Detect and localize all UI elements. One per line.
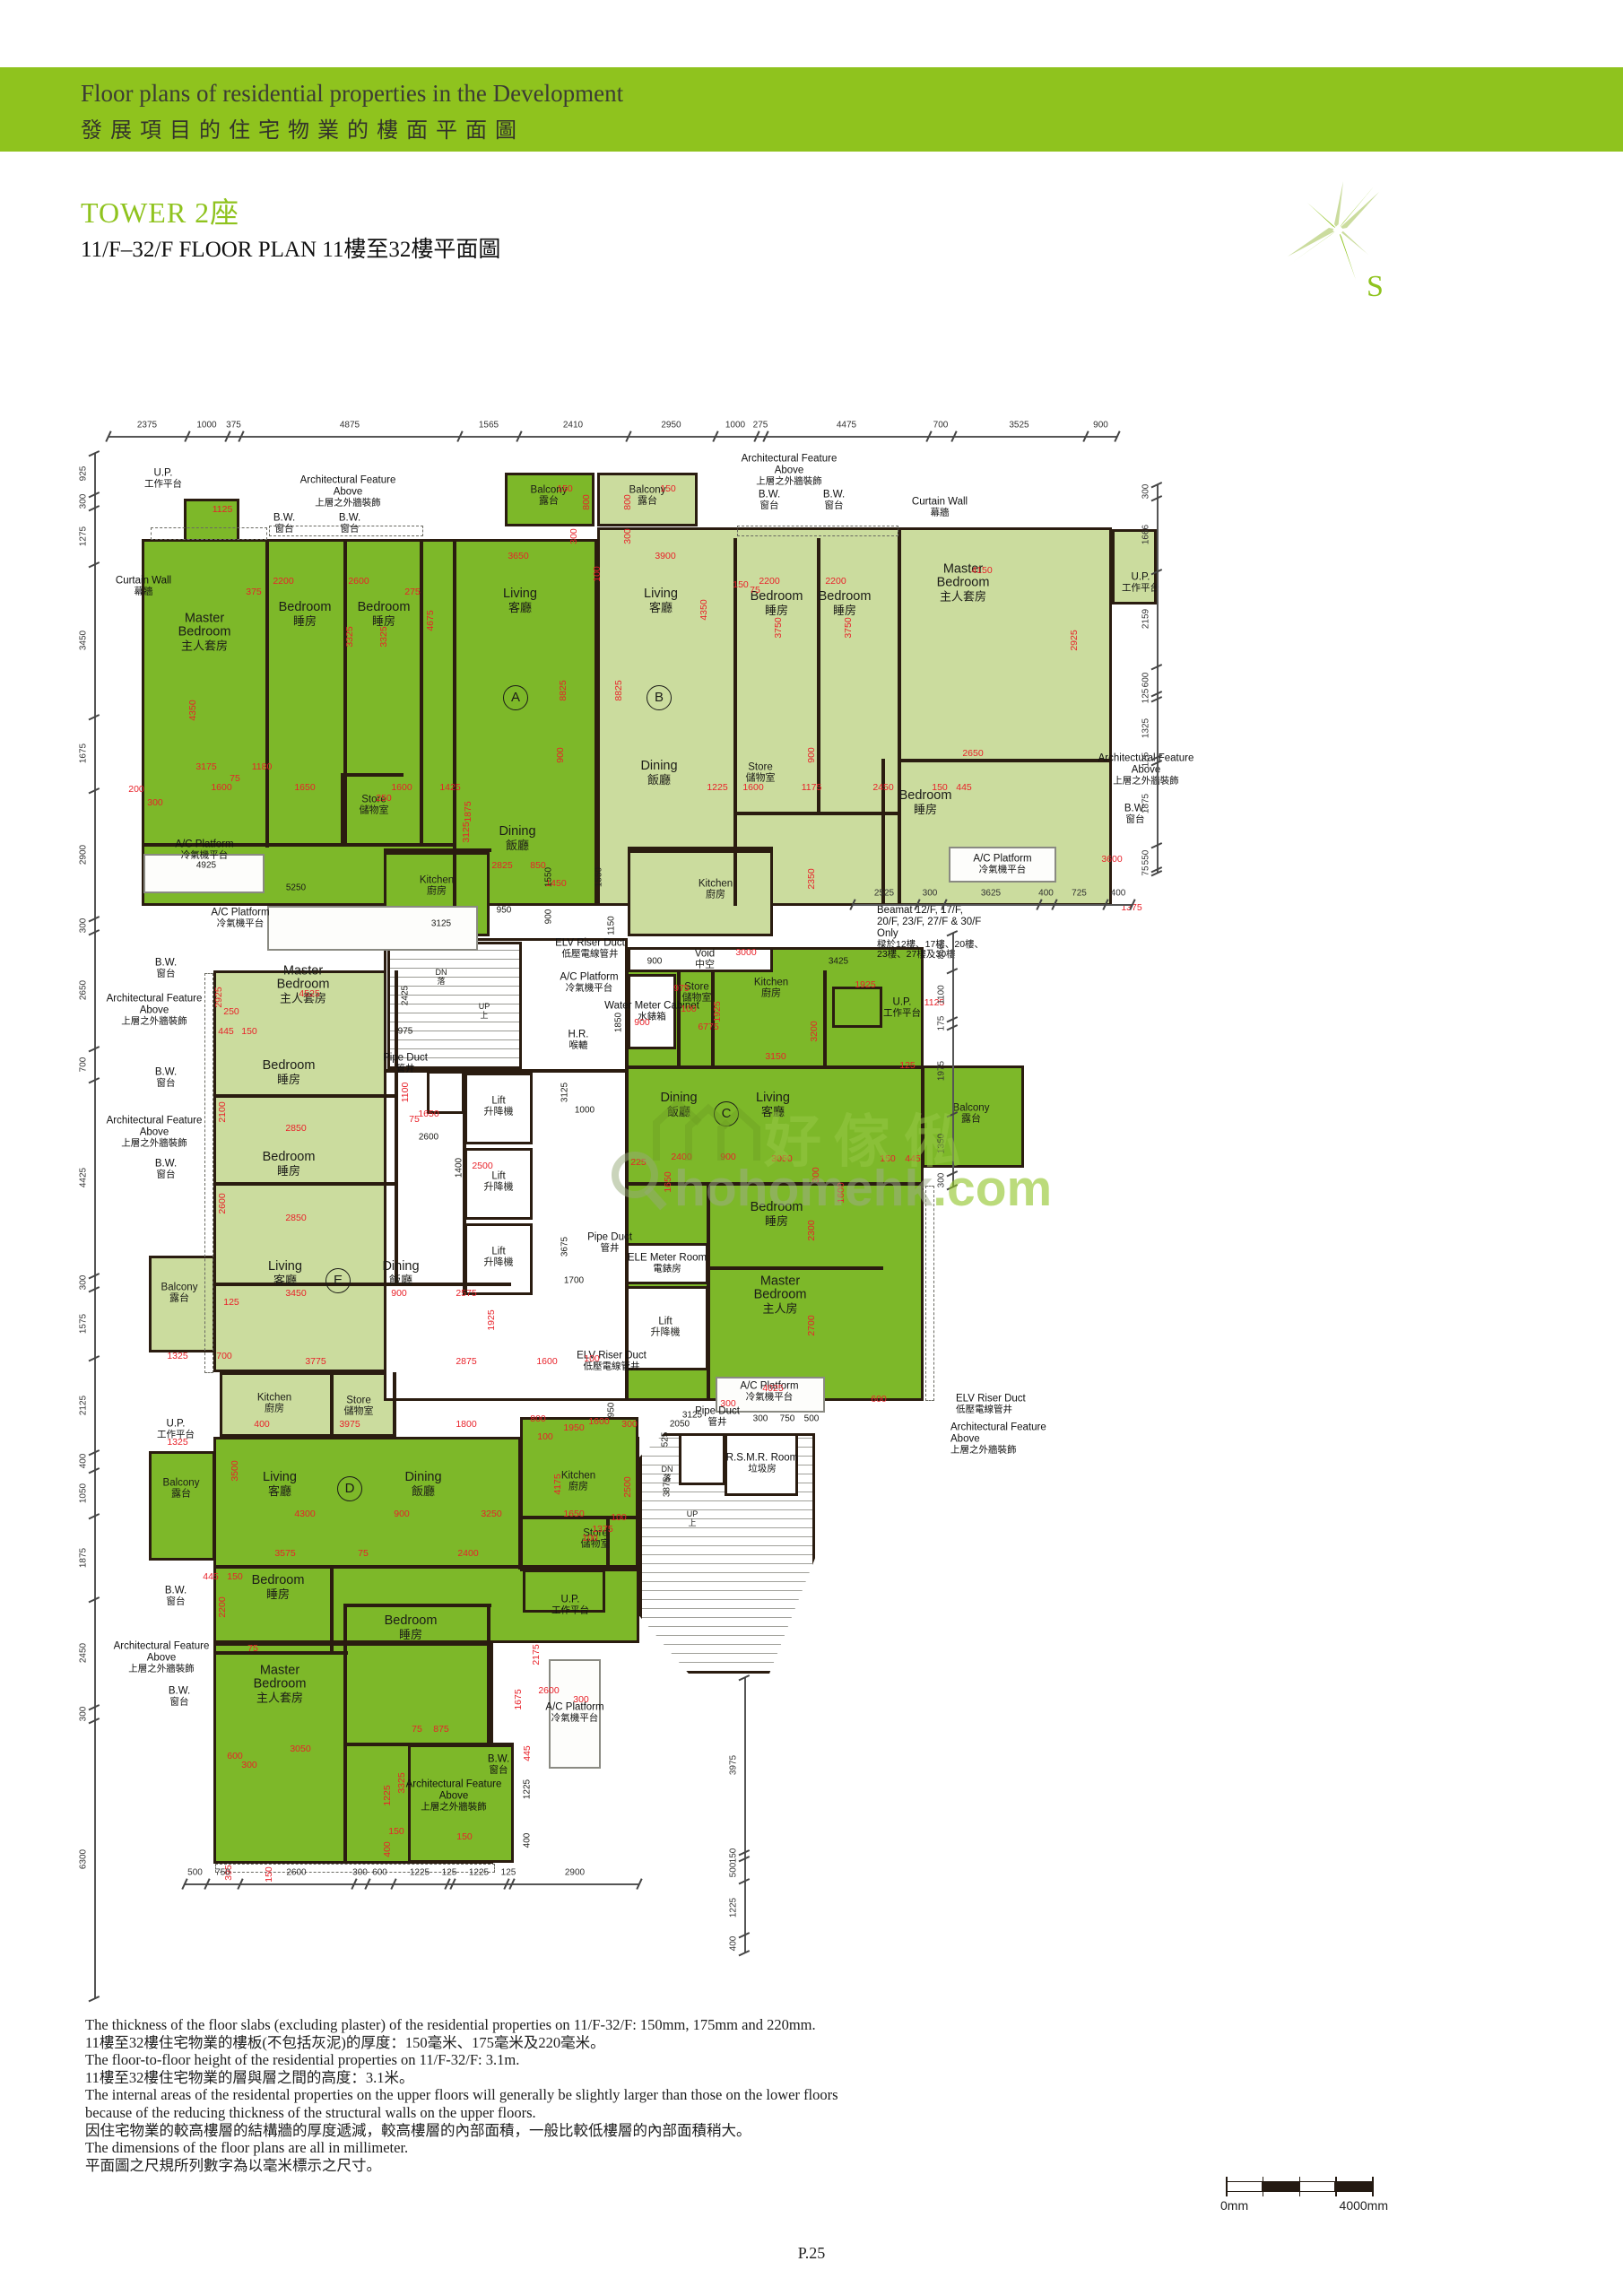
dimension: 2500: [472, 1161, 492, 1171]
wall: [343, 1604, 491, 1607]
annotation-zh: 電錶房: [613, 1265, 721, 1275]
dimension: 3425: [829, 957, 848, 967]
dimension: 1950: [563, 1422, 584, 1433]
dimension: 250: [223, 1006, 239, 1017]
room-label-en: Kitchen: [243, 1393, 306, 1404]
unit-badge: C: [714, 1101, 739, 1126]
dimension: 3050: [771, 1153, 792, 1164]
dimension: 2575: [456, 1288, 476, 1299]
room-label-en: Bedroom: [235, 1574, 321, 1587]
wall: [213, 1651, 348, 1655]
dimension: 3125: [682, 1411, 702, 1421]
wall: [518, 1437, 522, 1570]
dim-chain-value: 500: [187, 1868, 203, 1878]
dim-chain-value: 850: [937, 944, 947, 960]
annotation: U.P.工作平台: [1087, 572, 1194, 595]
note-line: 平面圖之尺規所列數字為以毫米標示之尺寸。: [85, 2157, 838, 2175]
dimension: 2400: [671, 1152, 691, 1162]
dimension: 4025: [762, 1383, 783, 1394]
room-label: Living客廳: [477, 587, 563, 614]
annotation-zh: 上層之外牆裝飾: [400, 1802, 508, 1813]
dimension: 200: [128, 784, 144, 795]
dimension: 600: [227, 1751, 243, 1761]
dimension: 75: [412, 1724, 422, 1735]
dim-chain-value: 2450: [79, 1643, 89, 1663]
room-label: Dining飯廳: [636, 1091, 722, 1118]
annotation: B.W.窗台: [126, 1686, 233, 1709]
annotation: Architectural Feature Above上層之外牆裝飾: [100, 1115, 208, 1149]
annotation-en: Pipe Duct: [556, 1232, 664, 1244]
annotation-zh: 窗台: [445, 1766, 552, 1777]
room-label-zh: 睡房: [246, 1165, 332, 1178]
room-label: Living客廳: [237, 1471, 323, 1498]
annotation: B.W.窗台: [122, 1586, 230, 1608]
dim-chain-value: 175: [937, 1015, 947, 1031]
room-label-zh: 睡房: [235, 1588, 321, 1601]
annotation-en: Architectural Feature Above: [950, 1422, 1058, 1445]
room-label-en: Dining: [358, 1260, 444, 1274]
dimension: 1700: [564, 1276, 584, 1286]
dimension: 300: [568, 528, 579, 544]
room-label: Bedroom睡房: [802, 590, 888, 617]
dimension: 3325: [344, 626, 355, 647]
wall: [823, 970, 827, 1067]
room-label-en: Master Bedroom: [161, 612, 247, 639]
annotation-zh: 窗台: [122, 1597, 230, 1608]
dim-chain-value: 400: [1111, 889, 1126, 899]
dimension: 1650: [563, 1509, 584, 1519]
room-label-zh: 落: [423, 978, 459, 987]
annotation-en: Pipe Duct: [352, 1053, 459, 1065]
room-label-en: Master Bedroom: [920, 562, 1006, 589]
room-label: Balcony露台: [150, 1478, 213, 1500]
dimension: 900: [806, 747, 817, 763]
dimension: 75: [750, 585, 760, 596]
room-label: Store儲物室: [343, 795, 405, 817]
dimension: 1225: [382, 1785, 393, 1805]
annotation-en: Architectural Feature Above: [100, 993, 208, 1016]
room-label: Dining飯廳: [380, 1471, 466, 1498]
dimension: 1325: [167, 1351, 187, 1361]
dimension: 2925: [1069, 630, 1080, 650]
scale-bar-segment: [1226, 2181, 1263, 2192]
wall: [899, 759, 1112, 762]
dimension: 75: [247, 1643, 258, 1654]
annotation-zh: 樑於12樓、17樓、20樓、23樓、27樓及30樓: [877, 940, 985, 961]
annotation-en: U.P.: [516, 1595, 624, 1606]
dim-chain-value: 2900: [565, 1868, 585, 1878]
dim-chain: [108, 436, 1116, 438]
wall: [395, 970, 398, 1284]
dimension: 2925: [213, 987, 224, 1007]
dim-chain-value: 2650: [79, 980, 89, 1000]
annotation-en: Architectural Feature Above: [100, 1115, 208, 1138]
dim-chain-value: 750: [215, 1868, 230, 1878]
dimension: 2500: [622, 1476, 633, 1497]
dimension: 125: [223, 1297, 239, 1308]
room-label-en: Kitchen: [405, 875, 468, 886]
dim-chain-value: 1000: [196, 421, 216, 430]
dimension: 3000: [735, 947, 756, 958]
annotation: B.W.窗台: [1081, 804, 1189, 826]
dimension: 3975: [339, 1419, 360, 1430]
dimension: 8825: [613, 680, 624, 700]
dim-chain: [852, 904, 1132, 906]
dimension: 4350: [187, 700, 198, 720]
room-label-zh: 主人套房: [237, 1692, 323, 1705]
room-label-zh: 客廳: [237, 1485, 323, 1498]
room-label: Balcony露台: [148, 1283, 211, 1305]
room-label-en: Master Bedroom: [237, 1664, 323, 1691]
dimension: 2600: [538, 1685, 559, 1696]
annotation: Architectural Feature Above上層之外牆裝飾: [950, 1422, 1058, 1456]
room-label-zh: 客廳: [618, 602, 704, 614]
dimension: 1600: [391, 782, 412, 793]
dimension: 1675: [513, 1689, 524, 1709]
dim-chain-value: 550: [1141, 849, 1151, 865]
annotation: U.P.工作平台: [109, 468, 217, 491]
dim-chain-value: 600: [1141, 673, 1151, 688]
dim-chain-value: 375: [226, 421, 241, 430]
room-label: Lift升降機: [467, 1171, 530, 1194]
room-label: Dining飯廳: [474, 825, 560, 852]
room-box: [427, 1071, 464, 1114]
room-label: Lift升降機: [467, 1247, 530, 1269]
dimension: 150: [557, 483, 573, 494]
room-label-en: Kitchen: [684, 879, 747, 890]
annotation-en: ELE Meter Room: [613, 1253, 721, 1265]
dim-chain-value: 75: [1141, 865, 1151, 875]
annotation-zh: 低壓電線管井: [956, 1405, 1063, 1416]
dim-chain-value: 1225: [729, 1898, 739, 1918]
annotation-zh: 低壓電線管井: [558, 1362, 665, 1373]
room-label-en: Dining: [636, 1091, 722, 1105]
annotation-en: Architectural Feature Above: [294, 474, 402, 498]
dimension: 750: [780, 1414, 795, 1424]
annotation-zh: 冷氣機平台: [187, 919, 294, 930]
annotation-zh: 上層之外牆裝飾: [100, 1016, 208, 1027]
room-label-en: Dining: [474, 825, 560, 839]
dimension: 225: [630, 1157, 647, 1168]
wall: [343, 1604, 347, 1863]
annotation: ELV Riser Duct低壓電線管井: [536, 938, 644, 961]
room-label-en: Bedroom: [246, 1151, 332, 1164]
room-label-zh: 主人套房: [161, 640, 247, 653]
annotation-zh: 窗台: [112, 970, 220, 980]
annotation-en: Architectural Feature Above: [735, 453, 843, 476]
dim-chain-value: 1275: [79, 526, 89, 545]
wall: [393, 1372, 396, 1437]
wall: [213, 1182, 397, 1186]
wall: [817, 538, 820, 815]
room-label-zh: 飯廳: [380, 1485, 466, 1498]
dimension: 1550: [595, 867, 604, 887]
unit-badge: E: [325, 1268, 351, 1293]
scale-bar-tick: [1335, 2177, 1337, 2196]
dimension: 1850: [614, 1013, 624, 1032]
annotation-en: B.W.: [122, 1586, 230, 1597]
room-label-zh: 儲物室: [327, 1407, 390, 1418]
dimension: 2100: [217, 1101, 228, 1122]
annotation: ELE Meter Room電錶房: [613, 1253, 721, 1275]
dim-chain-value: 300: [352, 1868, 368, 1878]
annotation-en: B.W.: [780, 490, 888, 501]
dimension: 800: [622, 494, 633, 510]
annotation: A/C Platform冷氣機平台: [521, 1702, 629, 1725]
dim-chain-value: 300: [937, 1172, 947, 1187]
dimension: 400: [254, 1419, 270, 1430]
dim-chain-value: 1975: [937, 1060, 947, 1080]
annotation-en: A/C Platform: [151, 839, 258, 851]
annotation-en: B.W.: [112, 1067, 220, 1079]
room-label-en: Master Bedroom: [737, 1274, 823, 1301]
dimension: 150: [932, 782, 948, 793]
room-box: [149, 1451, 215, 1561]
room-label: Bedroom睡房: [341, 601, 427, 628]
room-label-en: Lift: [467, 1096, 530, 1107]
dimension: 3125: [461, 822, 472, 842]
dimension: 3750: [773, 617, 784, 638]
room-label: Dining飯廳: [358, 1260, 444, 1287]
dim-chain-value: 300: [923, 889, 938, 899]
dimension: 2825: [491, 860, 512, 871]
annotation: B.W.窗台: [112, 958, 220, 980]
dimension: 1600: [742, 782, 763, 793]
dimension: 2175: [531, 1644, 542, 1665]
annotation: Beamat 12/F, 17/F, 20/F, 23/F, 27/F & 30…: [877, 905, 985, 961]
annotation-en: B.W.: [296, 513, 404, 525]
room-label-en: Lift: [467, 1171, 530, 1182]
dim-chain: [94, 453, 96, 1998]
annotation-en: Architectural Feature Above: [400, 1779, 508, 1802]
annotation-en: Architectural Feature Above: [108, 1640, 215, 1664]
annotation-zh: 上層之外牆裝飾: [100, 1138, 208, 1149]
dim-chain-value: 2159: [1141, 609, 1151, 629]
dimension: 8825: [558, 680, 568, 700]
room-label-zh: 升降機: [467, 1258, 530, 1269]
dim-chain-value: 700: [79, 1057, 89, 1072]
annotation-zh: 管井: [352, 1065, 459, 1075]
room-label-en: Store: [343, 795, 405, 805]
dimension: 6775: [698, 1022, 718, 1032]
room-label-en: Bedroom: [246, 1059, 332, 1073]
dim-chain: [184, 1883, 638, 1885]
annotation: ELV Riser Duct低壓電線管井: [558, 1351, 665, 1373]
dimension: 150: [456, 1831, 473, 1842]
annotation-en: R.S.M.R. Room: [708, 1453, 816, 1465]
annotation-en: Curtain Wall: [90, 576, 197, 587]
annotation-en: B.W.: [112, 958, 220, 970]
wall: [265, 539, 269, 848]
dimension: 1600: [836, 1182, 846, 1203]
dim-chain-value: 300: [79, 918, 89, 933]
scale-bar-tick: [1299, 2177, 1301, 2196]
annotation-zh: 幕牆: [886, 509, 994, 519]
dimension: 975: [398, 1027, 413, 1037]
dimension: 3175: [195, 761, 216, 772]
dimension: 600: [871, 1394, 887, 1405]
dim-chain-value: 1225: [410, 1868, 430, 1878]
dim-chain-value: 400: [1038, 889, 1054, 899]
dim-chain-value: 2410: [563, 421, 583, 430]
room-label-zh: 飯廳: [636, 1106, 722, 1118]
dimension: 2200: [273, 576, 293, 587]
room-label: Void中空: [673, 949, 736, 971]
dimension: 3125: [560, 1083, 570, 1102]
dim-chain-value: 1325: [1141, 717, 1151, 737]
annotation-zh: 上層之外牆裝飾: [1092, 776, 1200, 787]
room-label-zh: 飯廳: [358, 1274, 444, 1287]
annotation: B.W.窗台: [780, 490, 888, 512]
annotation: Architectural Feature Above上層之外牆裝飾: [735, 453, 843, 487]
dimension: 4675: [425, 610, 436, 631]
room-label: Lift升降機: [467, 1096, 530, 1118]
dimension: 275: [404, 587, 421, 597]
room-label: Bedroom睡房: [882, 789, 968, 816]
annotation: Pipe Duct管井: [556, 1232, 664, 1255]
dim-chain-value: 1675: [79, 744, 89, 763]
dimension: 3200: [809, 1021, 820, 1041]
room-label-zh: 睡房: [262, 615, 348, 628]
annotation: R.S.M.R. Room垃圾房: [708, 1453, 816, 1475]
unit-badge: D: [337, 1476, 362, 1501]
room-label-en: UP: [674, 1510, 710, 1518]
note-line: 11樓至32樓住宅物業的樓板(不包括灰泥)的厚度：150毫米、175毫米及220…: [85, 2034, 838, 2052]
annotation: Curtain Wall幕牆: [886, 497, 994, 519]
dim-chain-value: 2900: [79, 844, 89, 864]
room-label: Kitchen廚房: [405, 875, 468, 898]
dimension: 400: [382, 1841, 393, 1857]
room-label-zh: 客廳: [242, 1274, 328, 1287]
dimension: 1650: [294, 782, 315, 793]
room-label: Living客廳: [618, 587, 704, 614]
dimension: 300: [811, 1167, 821, 1183]
room-label-zh: 升降機: [634, 1328, 697, 1339]
dimension: 445: [203, 1571, 219, 1582]
note-line: 因住宅物業的較高樓層的結構牆的厚度遞減，較高樓層的內部面積，一般比較低樓層的內部…: [85, 2122, 838, 2140]
annotation-en: U.P.: [1087, 572, 1194, 584]
room-label: Kitchen廚房: [243, 1393, 306, 1415]
room-label-zh: 睡房: [368, 1629, 454, 1641]
room-label-zh: 廚房: [405, 887, 468, 898]
dimension: 2425: [401, 986, 411, 1005]
brochure-page: Floor plans of residential properties in…: [0, 0, 1623, 2296]
notes-block: The thickness of the floor slabs (exclud…: [85, 2016, 838, 2174]
room-label: DN落: [423, 969, 459, 987]
dashed-feature-line: [925, 1186, 934, 1401]
dimension: 3775: [305, 1356, 325, 1367]
dimension: 2850: [285, 1213, 306, 1223]
dimension: 3450: [285, 1288, 306, 1299]
room-label-zh: 睡房: [802, 604, 888, 617]
annotation-zh: 低壓電線管井: [536, 950, 644, 961]
dimension: 3675: [560, 1237, 570, 1257]
dimension: 1175: [802, 782, 822, 793]
dim-chain-value: 1575: [79, 1313, 89, 1333]
dimension: 1925: [855, 979, 875, 990]
dimension: 4350: [699, 599, 709, 620]
dimension: 800: [581, 494, 592, 510]
room-label-zh: 客廳: [730, 1106, 816, 1118]
note-line: The dimensions of the floor plans are al…: [85, 2139, 838, 2157]
dim-chain-value: 125: [1141, 752, 1151, 768]
room-label-zh: 主人套房: [920, 591, 1006, 604]
dimension: 300: [720, 1398, 736, 1409]
annotation-en: U.P.: [122, 1419, 230, 1431]
dimension: 900: [394, 1509, 410, 1519]
scale-bar-segment: [1335, 2181, 1372, 2192]
room-label-en: Lift: [634, 1317, 697, 1327]
annotation: B.W.窗台: [112, 1067, 220, 1090]
dim-chain-value: 725: [1072, 889, 1087, 899]
annotation: Curtain Wall幕牆: [90, 576, 197, 598]
wall: [733, 812, 901, 815]
note-line: because of the reducing thickness of the…: [85, 2104, 838, 2122]
annotation-en: A/C Platform: [535, 972, 643, 984]
dim-chain-value: 2600: [286, 1868, 306, 1878]
room-label: Master Bedroom主人套房: [237, 1664, 323, 1704]
dim-chain-value: 1565: [479, 421, 499, 430]
dimension: 1400: [455, 1158, 464, 1178]
annotation: B.W.窗台: [296, 513, 404, 535]
room-label-en: Bedroom: [341, 601, 427, 614]
dimension: 3050: [290, 1744, 310, 1754]
annotation: Architectural Feature Above上層之外牆裝飾: [294, 474, 402, 509]
dimension: 1425: [439, 782, 460, 793]
dimension: 1650: [663, 1171, 673, 1192]
dimension: 100: [582, 1533, 598, 1544]
dimension: 525: [661, 1432, 671, 1448]
room-label-en: Balcony: [148, 1283, 211, 1293]
scale-bar-tick: [1263, 2177, 1264, 2196]
room-label: Master Bedroom主人套房: [920, 562, 1006, 603]
dimension: 100: [537, 1431, 553, 1442]
dimension: 1100: [400, 1083, 411, 1103]
dimension: 1600: [211, 782, 231, 793]
dimension: 1925: [712, 1001, 723, 1022]
room-label-zh: 主人房: [737, 1303, 823, 1316]
room-label: UP上: [674, 1510, 710, 1528]
dimension: 2600: [217, 1193, 228, 1213]
room-label-en: Living: [477, 587, 563, 601]
dimension: 4925: [196, 861, 216, 871]
annotation-zh: 窗台: [112, 1079, 220, 1090]
dimension: 900: [647, 957, 663, 967]
dimension: 300: [753, 1414, 768, 1424]
room-label: Master Bedroom主人套房: [161, 612, 247, 652]
dimension: 100: [584, 1353, 600, 1364]
annotation-en: B.W.: [112, 1159, 220, 1170]
annotation-zh: 窗台: [126, 1698, 233, 1709]
dimension: 4175: [552, 1474, 563, 1494]
dashed-feature-line: [737, 526, 898, 536]
dimension: 1800: [456, 1419, 476, 1430]
dimension: 700: [216, 1351, 232, 1361]
room-label-en: Dining: [380, 1471, 466, 1484]
dimension: 445: [905, 1153, 921, 1164]
dim-chain-value: 125: [442, 1868, 457, 1878]
room-label-zh: 上: [674, 1520, 710, 1528]
dimension: 2200: [217, 1596, 228, 1617]
dim-chain-value: 3975: [729, 1754, 739, 1774]
annotation-zh: 上層之外牆裝飾: [950, 1445, 1058, 1456]
dimension: 3325: [378, 626, 389, 647]
room-label-zh: 露台: [517, 497, 580, 508]
dimension: 2300: [806, 1220, 817, 1240]
annotation-zh: 幕牆: [90, 587, 197, 598]
dim-chain-value: 4475: [837, 421, 856, 430]
wall: [707, 1182, 710, 1401]
